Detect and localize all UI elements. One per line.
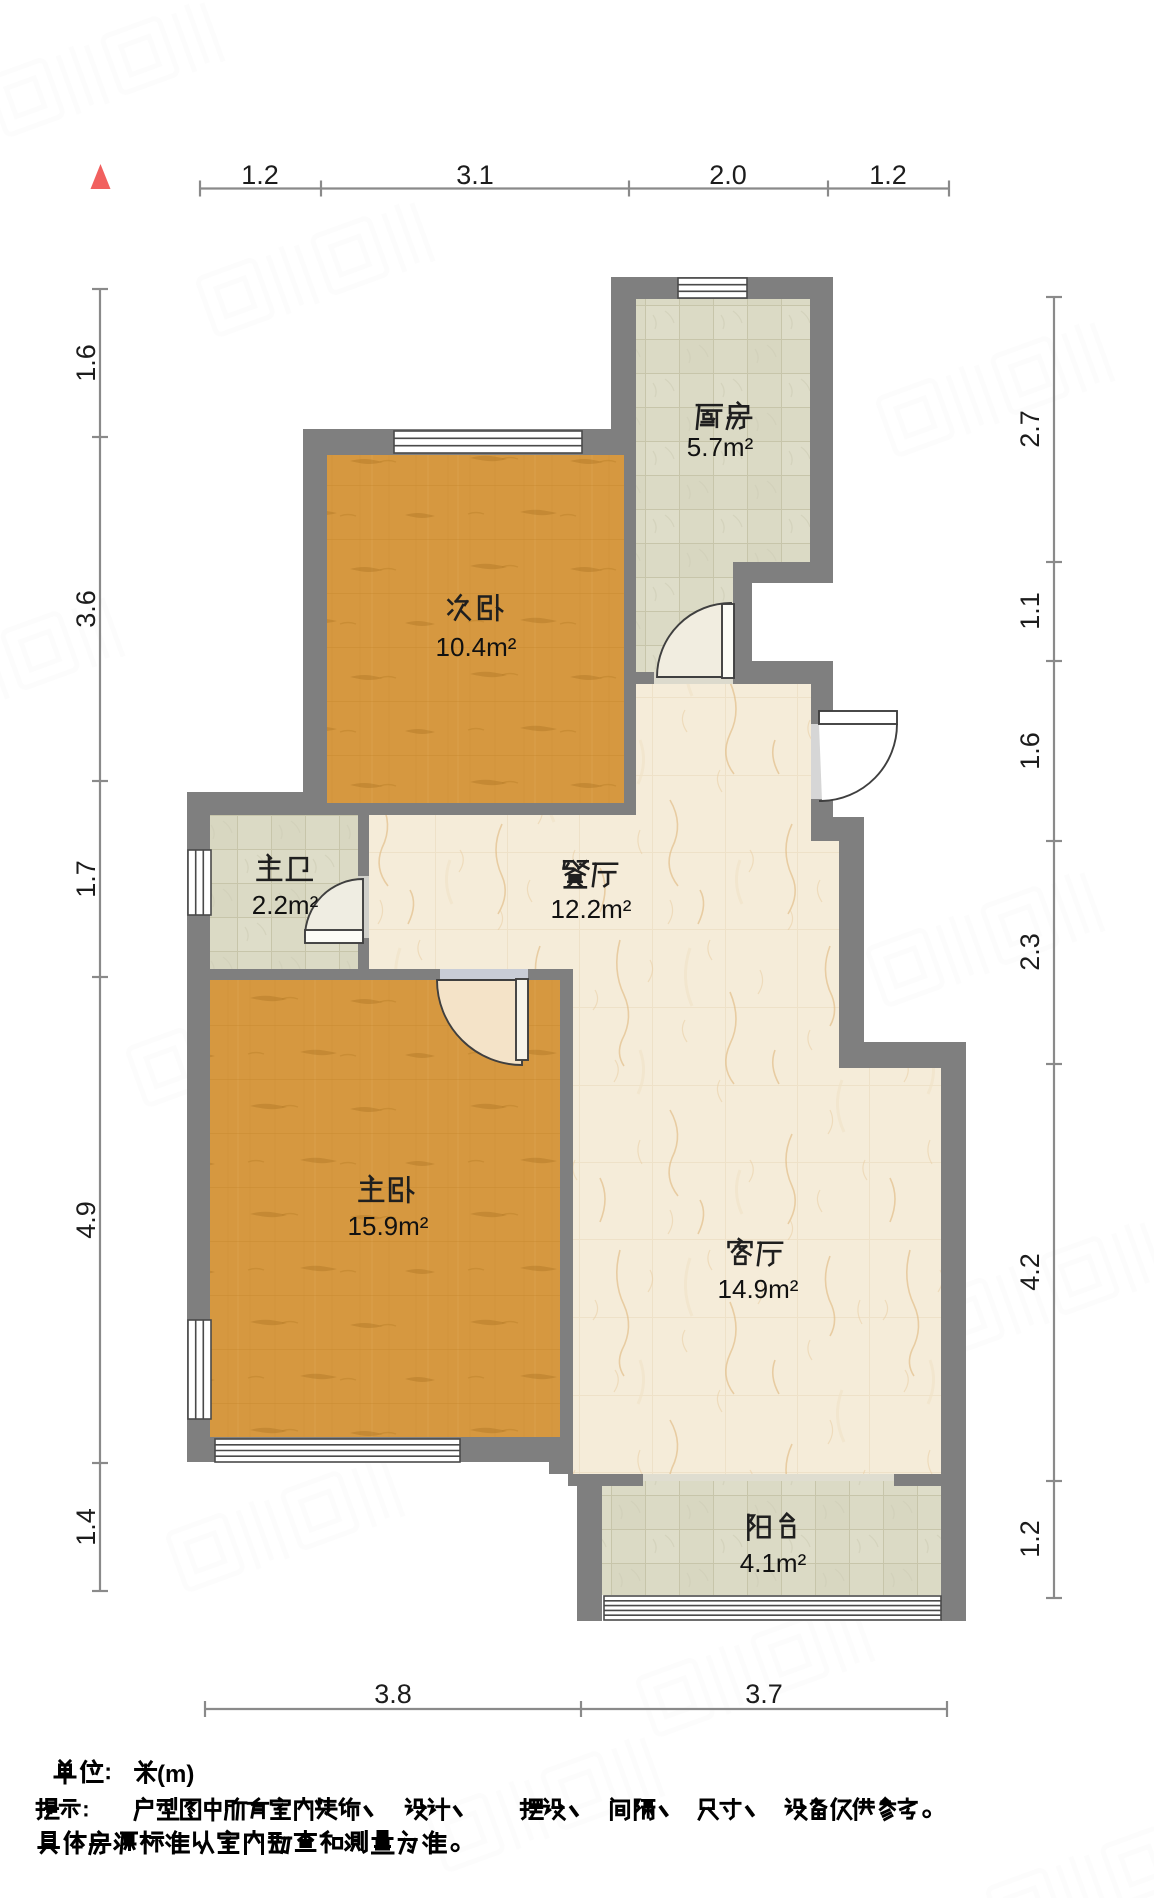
svg-text:1.7: 1.7 xyxy=(71,860,101,898)
svg-text:1.2: 1.2 xyxy=(241,160,279,190)
svg-text:1.6: 1.6 xyxy=(1015,732,1045,770)
svg-text:4.1m²: 4.1m² xyxy=(740,1548,807,1578)
svg-text:15.9m²: 15.9m² xyxy=(348,1211,429,1241)
svg-text:3.8: 3.8 xyxy=(374,1679,412,1709)
svg-text:1.6: 1.6 xyxy=(71,344,101,382)
svg-text:2.3: 2.3 xyxy=(1015,933,1045,971)
svg-text:3.6: 3.6 xyxy=(71,590,101,628)
svg-text:2.2m²: 2.2m² xyxy=(252,890,319,920)
svg-text:3.1: 3.1 xyxy=(456,160,494,190)
svg-text:5.7m²: 5.7m² xyxy=(687,432,754,462)
svg-text:4.2: 4.2 xyxy=(1015,1253,1045,1291)
svg-text:14.9m²: 14.9m² xyxy=(718,1274,799,1304)
svg-text:1.2: 1.2 xyxy=(869,160,907,190)
svg-text:2.0: 2.0 xyxy=(709,160,747,190)
svg-text:10.4m²: 10.4m² xyxy=(436,632,517,662)
svg-text:1.1: 1.1 xyxy=(1015,592,1045,630)
svg-text:1.4: 1.4 xyxy=(71,1508,101,1546)
svg-text:2.7: 2.7 xyxy=(1015,410,1045,448)
svg-text:4.9: 4.9 xyxy=(71,1201,101,1239)
svg-text:(m): (m) xyxy=(157,1761,194,1788)
svg-text:3.7: 3.7 xyxy=(745,1679,783,1709)
svg-text:12.2m²: 12.2m² xyxy=(551,894,632,924)
svg-text:1.2: 1.2 xyxy=(1015,1520,1045,1558)
